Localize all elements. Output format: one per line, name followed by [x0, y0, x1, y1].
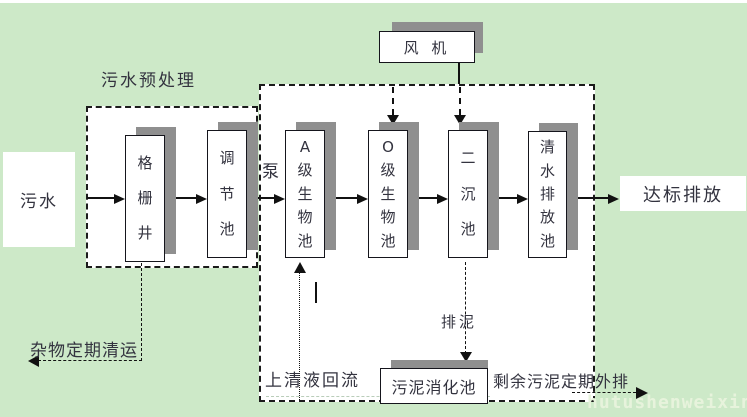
- tank-secondary-sedimentation: 二沉池: [448, 130, 488, 258]
- tank-sludge-digestion: 污泥消化池: [380, 368, 488, 404]
- sludge-discharge-line: [465, 262, 466, 354]
- tank-grid-well: 格栅井: [125, 135, 165, 262]
- sludge-discharge-label: 排泥: [441, 314, 477, 331]
- tank-regulating: 调节池: [207, 130, 247, 258]
- aeration-line-sedimentation: [459, 87, 461, 115]
- influent-label: 污水: [3, 152, 75, 247]
- debris-removal-label: 杂物定期清运: [30, 342, 138, 361]
- tank-regulating-label: 调节池: [208, 131, 246, 257]
- supernatant-return-label: 上清液回流: [265, 372, 360, 391]
- wastewater-treatment-flow-diagram: 污水预处理 污水 达标排放 风 机 泵 格栅井 调节池 A级生物池 O级生物池 …: [0, 0, 747, 417]
- watermark: hutushenweixin.com: [587, 392, 747, 413]
- tank-grid-well-label: 格栅井: [126, 136, 164, 261]
- aeration-line-o-tank: [392, 87, 394, 115]
- tank-clean-water-label: 清水排放池: [529, 132, 566, 257]
- excess-sludge-label: 剩余污泥定期外排: [493, 373, 629, 391]
- tank-o-bio: O级生物池: [368, 130, 408, 258]
- supernatant-arrowhead-up: [294, 262, 306, 273]
- tank-a-bio: A级生物池: [285, 130, 325, 258]
- pretreatment-region-title: 污水预处理: [101, 72, 196, 91]
- tank-a-bio-label: A级生物池: [286, 131, 324, 257]
- pump-label: 泵: [262, 163, 279, 182]
- tank-o-bio-label: O级生物池: [369, 131, 407, 257]
- debris-line-vertical: [141, 263, 142, 361]
- flow-arrow-influent-to-grid: [87, 197, 114, 199]
- fan-connector-line: [458, 63, 460, 84]
- top-edge-strip: [0, 0, 747, 3]
- effluent-label: 达标排放: [620, 176, 746, 211]
- tank-secondary-sedimentation-label: 二沉池: [449, 131, 487, 257]
- fan-box: 风 机: [379, 31, 475, 63]
- tank-clean-water: 清水排放池: [528, 131, 567, 258]
- supernatant-tick-mark: [315, 282, 317, 303]
